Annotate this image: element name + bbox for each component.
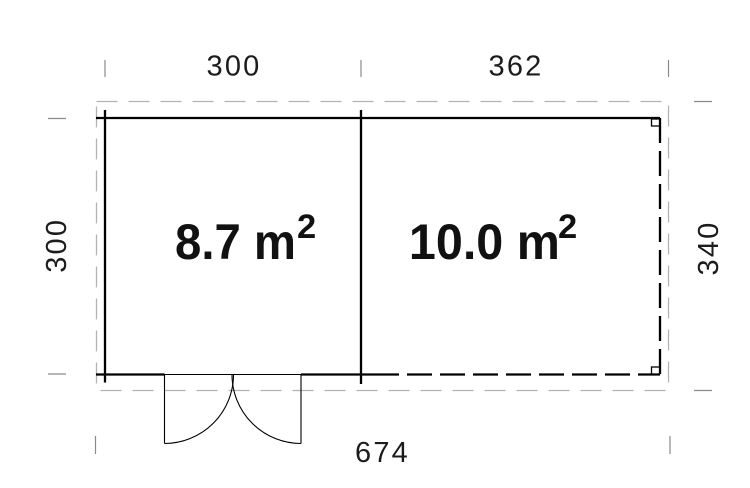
- svg-text:2: 2: [297, 208, 316, 246]
- svg-text:674: 674: [355, 437, 410, 469]
- svg-text:300: 300: [41, 218, 73, 273]
- svg-text:340: 340: [693, 221, 725, 276]
- svg-text:362: 362: [489, 51, 544, 83]
- svg-text:2: 2: [558, 208, 577, 246]
- svg-text:8.7 m: 8.7 m: [175, 214, 296, 270]
- svg-text:10.0 m: 10.0 m: [409, 214, 560, 270]
- svg-text:300: 300: [207, 51, 262, 83]
